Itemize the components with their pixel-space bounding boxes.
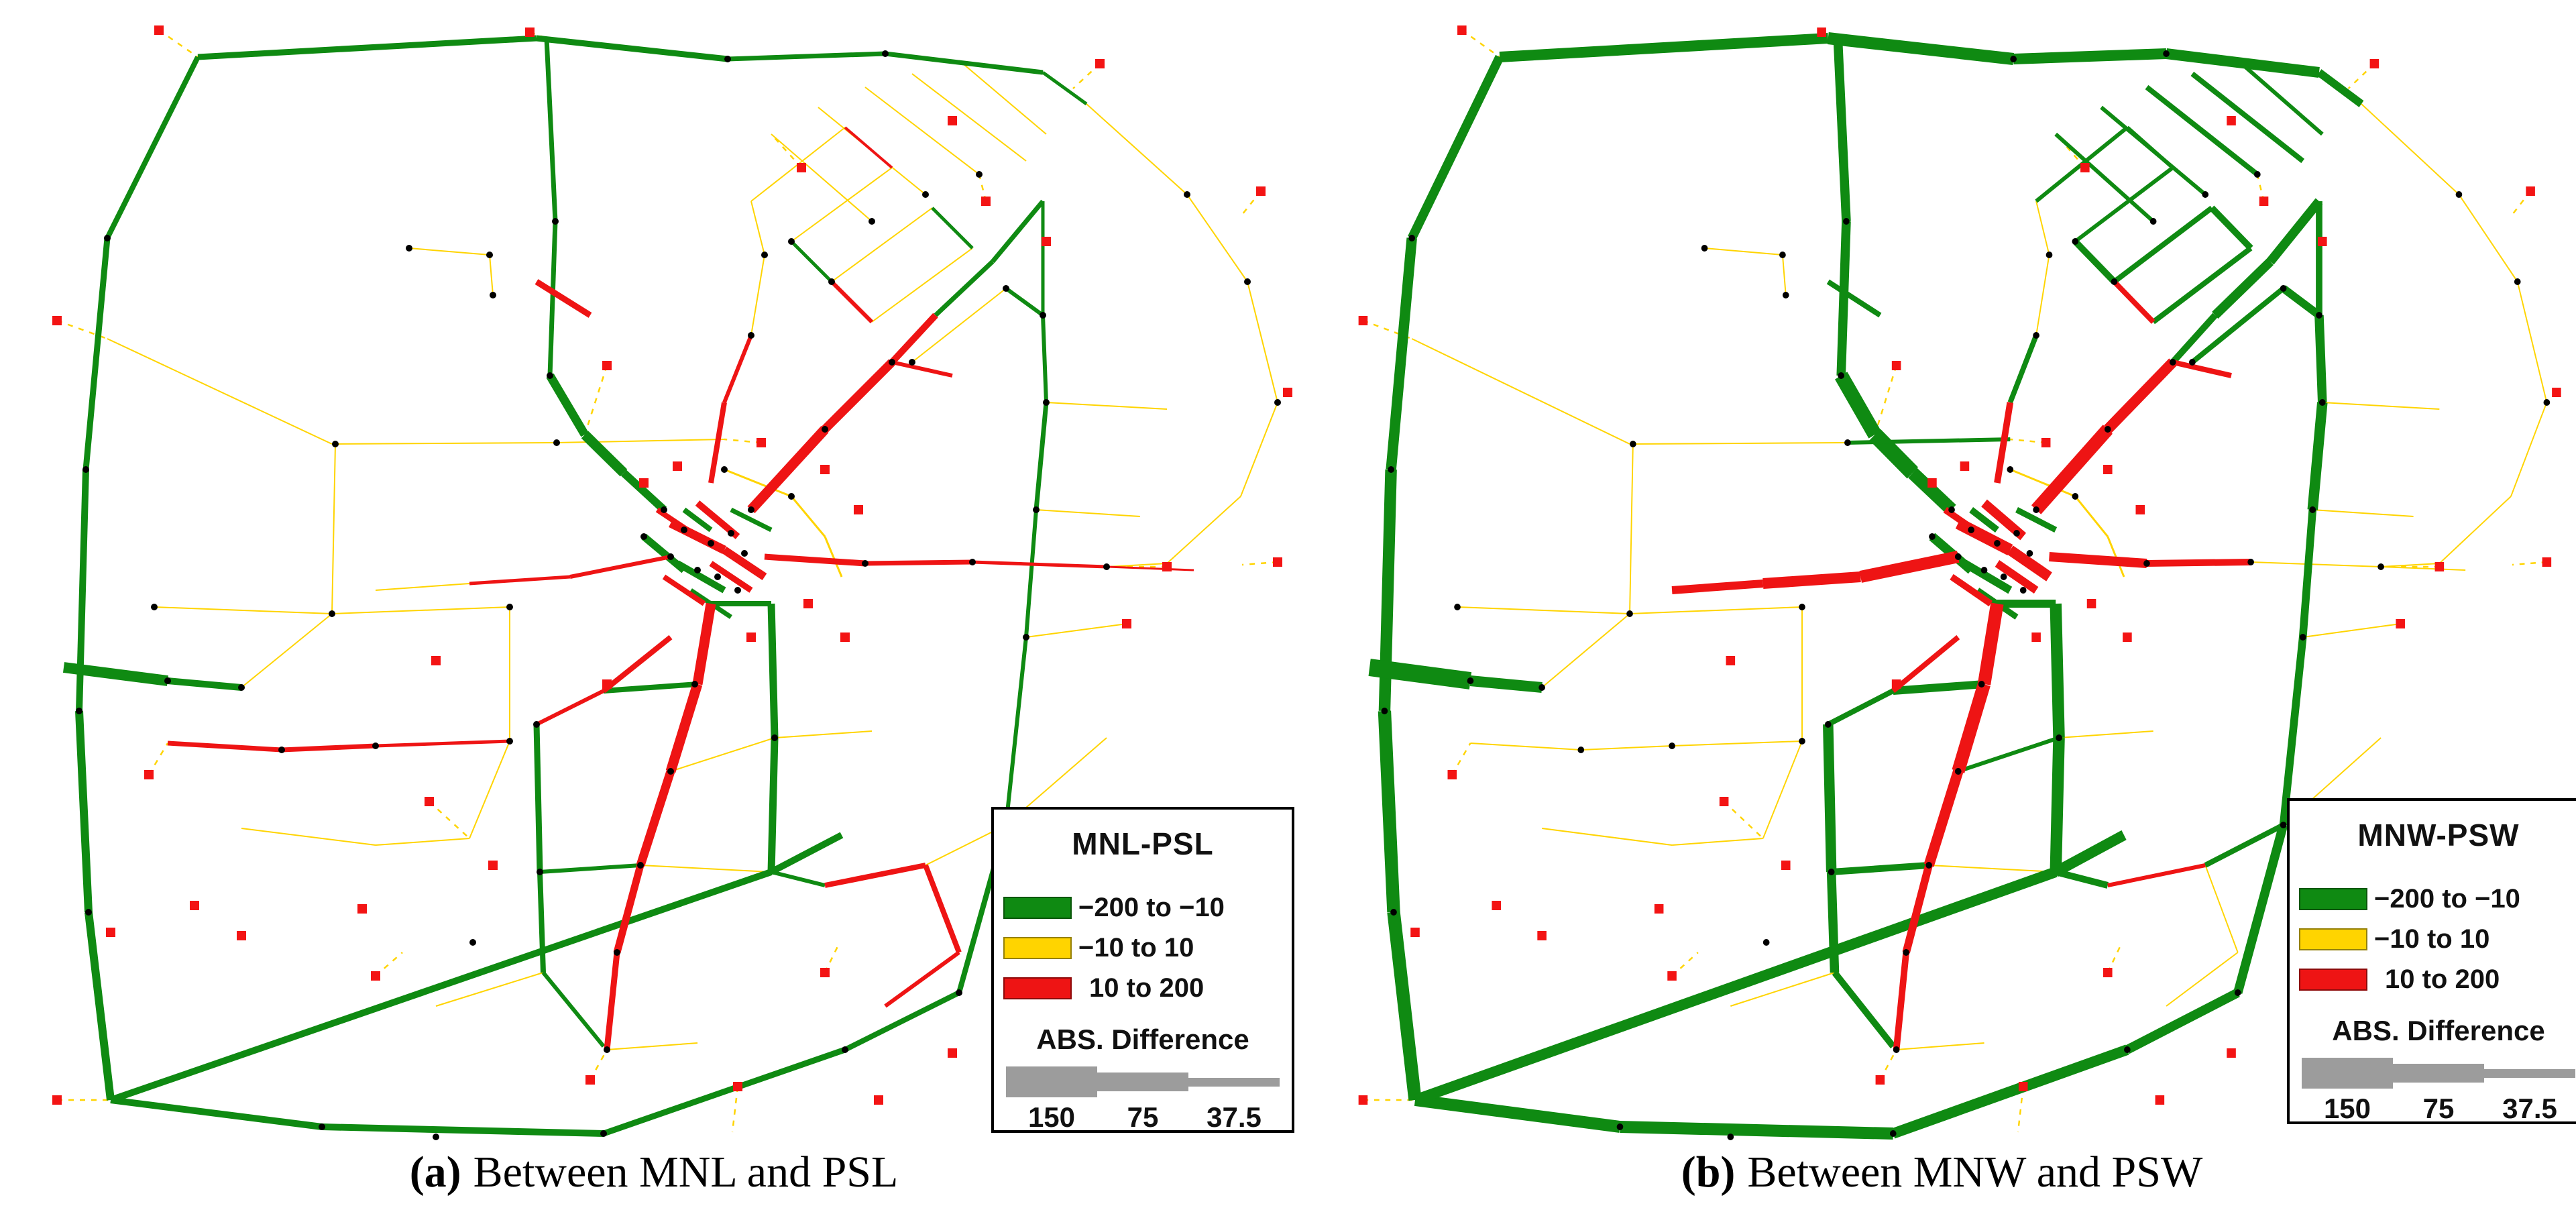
legend-row-positive: 10 to 200 — [2299, 965, 2576, 995]
abs-label-150: 150 — [1006, 1101, 1097, 1134]
legend-title-a: MNL-PSL — [1072, 826, 1213, 862]
legend-row-negative: −200 to −10 — [1003, 893, 1282, 923]
abs-bar-150 — [1006, 1066, 1097, 1097]
caption-b: (b)Between MNW and PSW — [1308, 1147, 2576, 1198]
map-panel-b: MNW-PSW −200 to −10 −10 to 10 10 to 200 … — [1308, 0, 2576, 1140]
abs-bar-37 — [1188, 1078, 1280, 1087]
legend-class-rows: −200 to −10 −10 to 10 10 to 200 — [2299, 884, 2576, 995]
abs-scale-labels: 150 75 37.5 — [2302, 1093, 2575, 1125]
caption-a-label: (a) — [410, 1148, 461, 1197]
green-swatch — [1003, 897, 1072, 919]
abs-label-37: 37.5 — [1188, 1101, 1280, 1134]
abs-difference-title: ABS. Difference — [1036, 1024, 1249, 1056]
map-panel-a: MNL-PSL −200 to −10 −10 to 10 10 to 200 … — [0, 0, 1308, 1140]
red-swatch — [1003, 977, 1072, 999]
red-swatch — [2299, 969, 2367, 991]
caption-b-label: (b) — [1681, 1148, 1736, 1197]
legend-row-negative: −200 to −10 — [2299, 884, 2576, 914]
caption-b-text: Between MNW and PSW — [1747, 1148, 2202, 1197]
legend-title-b: MNW-PSW — [2357, 817, 2519, 853]
legend-row-neutral: −10 to 10 — [2299, 924, 2576, 954]
yellow-swatch — [1003, 937, 1072, 959]
legend-label-neutral: −10 to 10 — [2374, 924, 2489, 954]
abs-label-75: 75 — [1097, 1101, 1188, 1134]
caption-a-text: Between MNL and PSL — [473, 1148, 899, 1197]
figure: MNL-PSL −200 to −10 −10 to 10 10 to 200 … — [0, 0, 2576, 1210]
legend-row-neutral: −10 to 10 — [1003, 933, 1282, 963]
abs-difference-title: ABS. Difference — [2332, 1015, 2544, 1047]
legend-box-a: MNL-PSL −200 to −10 −10 to 10 10 to 200 … — [991, 807, 1294, 1133]
legend-row-positive: 10 to 200 — [1003, 973, 1282, 1003]
abs-bar-75 — [1097, 1072, 1188, 1091]
legend-label-neutral: −10 to 10 — [1078, 933, 1194, 963]
legend-box-b: MNW-PSW −200 to −10 −10 to 10 10 to 200 … — [2287, 798, 2576, 1124]
legend-label-positive: 10 to 200 — [2385, 965, 2500, 995]
abs-width-scale — [2302, 1058, 2575, 1089]
abs-bar-150 — [2302, 1058, 2393, 1089]
abs-label-75: 75 — [2393, 1093, 2484, 1125]
caption-a: (a)Between MNL and PSL — [0, 1147, 1308, 1198]
legend-label-positive: 10 to 200 — [1089, 973, 1204, 1003]
abs-scale-labels: 150 75 37.5 — [1006, 1101, 1280, 1134]
abs-bar-37 — [2484, 1069, 2575, 1078]
abs-width-scale — [1006, 1066, 1280, 1097]
abs-label-150: 150 — [2302, 1093, 2393, 1125]
legend-label-negative: −200 to −10 — [1078, 893, 1225, 923]
green-swatch — [2299, 888, 2367, 910]
legend-class-rows: −200 to −10 −10 to 10 10 to 200 — [1003, 893, 1282, 1003]
abs-label-37: 37.5 — [2484, 1093, 2575, 1125]
yellow-swatch — [2299, 928, 2367, 950]
legend-label-negative: −200 to −10 — [2374, 884, 2520, 914]
abs-bar-75 — [2393, 1064, 2484, 1083]
